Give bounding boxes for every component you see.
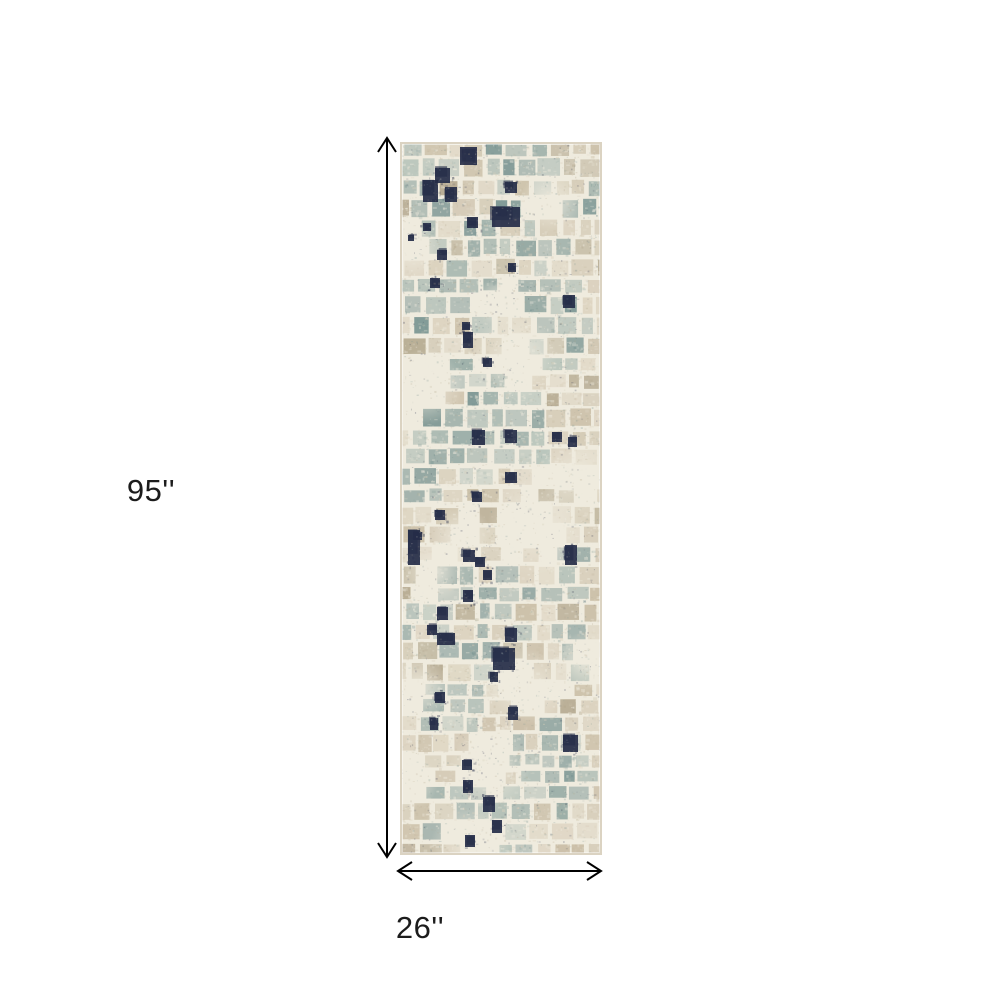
height-dimension-arrow <box>375 130 399 866</box>
product-dimension-diagram: 95'' 26'' <box>0 0 1000 1000</box>
width-dimension-arrow <box>392 859 608 883</box>
rug-image <box>400 142 602 855</box>
width-dimension-label: 26'' <box>378 912 462 945</box>
height-dimension-label: 95'' <box>105 475 197 508</box>
